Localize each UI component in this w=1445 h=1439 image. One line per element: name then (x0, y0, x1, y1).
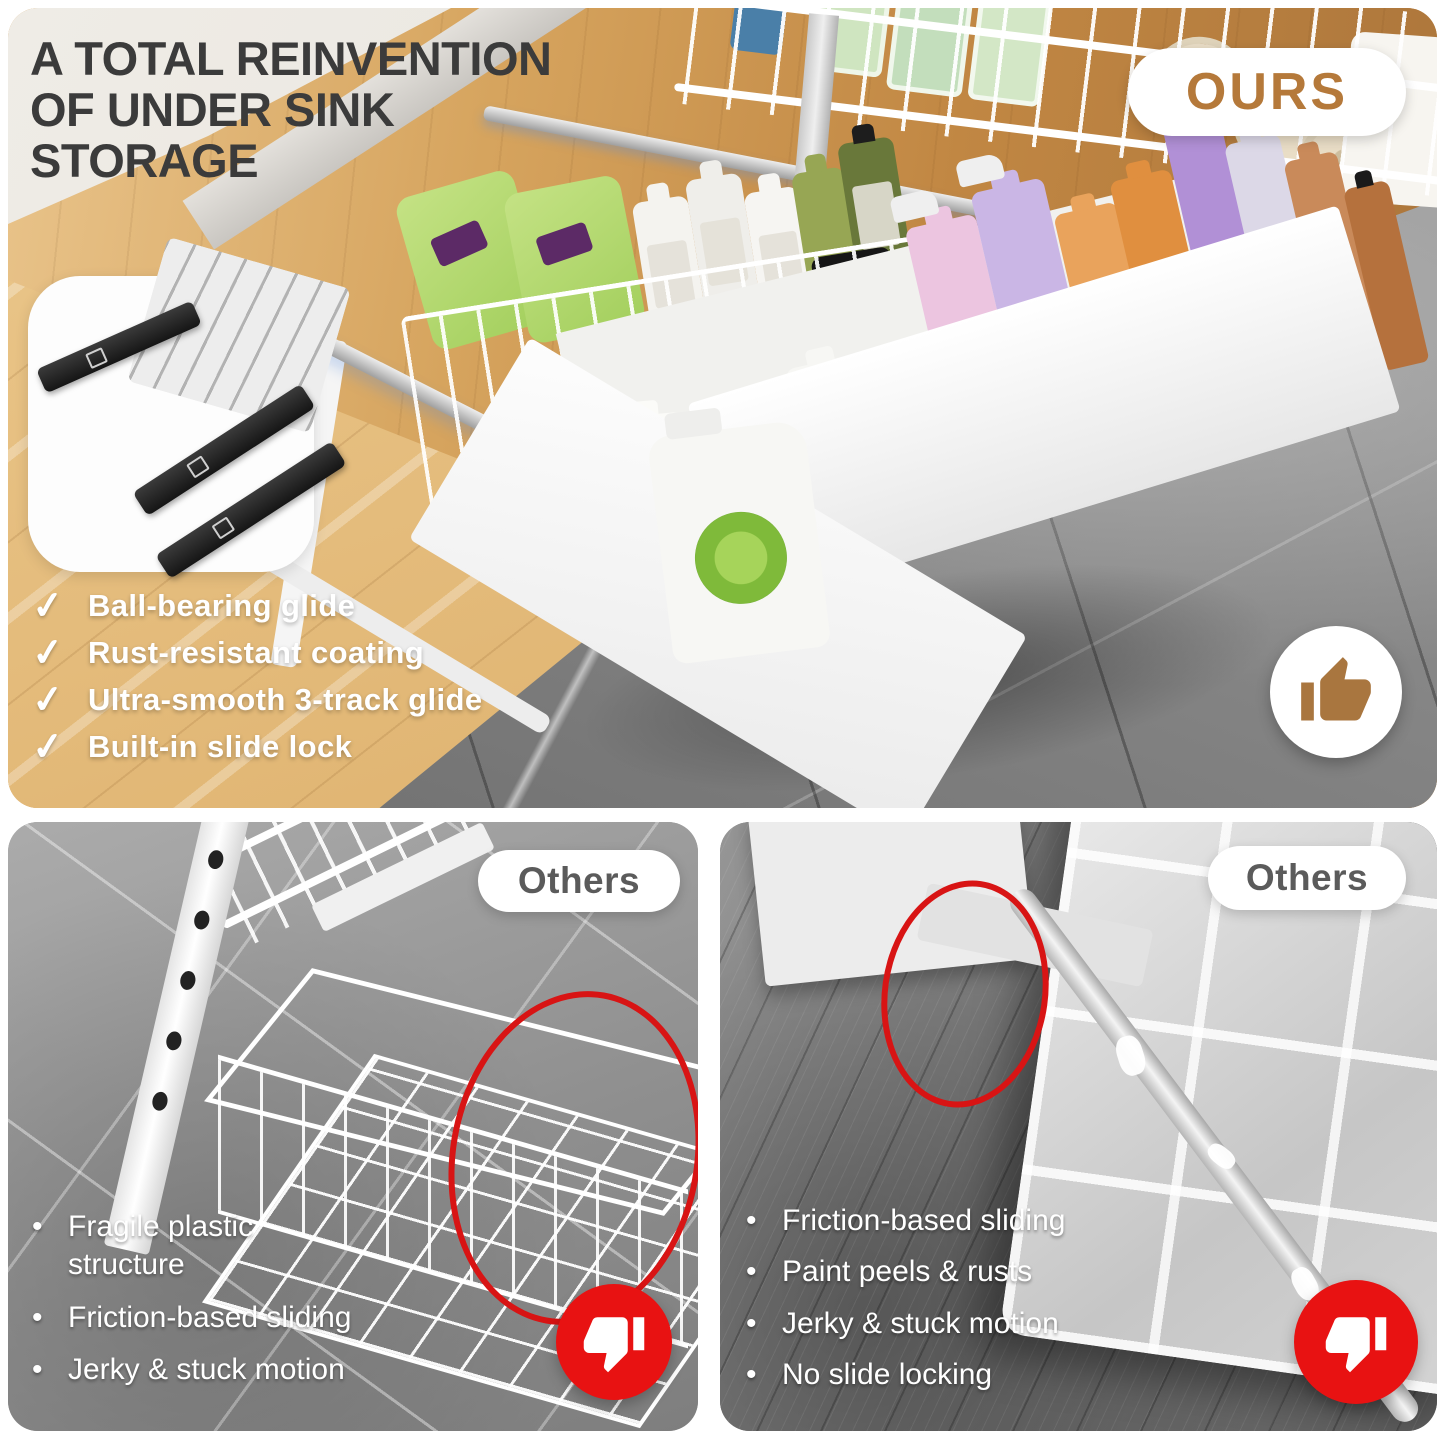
drawback-list: • Fragile plastic structure • Friction-b… (32, 1208, 392, 1404)
ours-badge: OURS (1128, 48, 1406, 136)
competitor-panel-left: Others • Fragile plastic structure • Fri… (8, 822, 698, 1431)
others-badge-label: Others (1246, 857, 1368, 899)
feature-checklist: ✓ Ball-bearing glide ✓ Rust-resistant co… (32, 582, 483, 770)
bullet-glyph: • (32, 1299, 54, 1337)
bullet-glyph: • (746, 1305, 768, 1343)
drawback-item: • Friction-based sliding (746, 1202, 1206, 1240)
drawback-item: • Friction-based sliding (32, 1299, 392, 1337)
drawback-item: • Jerky & stuck motion (746, 1305, 1206, 1343)
ours-panel: A TOTAL REINVENTION OF UNDER SINK STORAG… (8, 8, 1437, 808)
check-icon: ✓ (30, 581, 74, 630)
slide-rail-inset-photo (28, 276, 314, 572)
drawback-item: • Jerky & stuck motion (32, 1351, 392, 1389)
detergent-jug (647, 419, 832, 665)
feature-item: ✓ Ultra-smooth 3-track glide (32, 676, 483, 723)
bullet-glyph: • (746, 1356, 768, 1394)
drawback-text: Jerky & stuck motion (782, 1305, 1059, 1343)
thumbs-down-icon (1323, 1309, 1389, 1375)
drawback-text: Friction-based sliding (68, 1299, 351, 1337)
thumbs-down-icon (581, 1309, 647, 1375)
bullet-glyph: • (746, 1253, 768, 1291)
others-badge: Others (1208, 846, 1406, 910)
title-line-2: OF UNDER SINK (30, 85, 551, 136)
feature-label: Built-in slide lock (88, 729, 352, 765)
drawback-item: • Fragile plastic structure (32, 1208, 392, 1285)
ours-badge-label: OURS (1186, 62, 1348, 122)
feature-label: Rust-resistant coating (88, 635, 424, 671)
thumbs-up-badge (1270, 626, 1402, 758)
bullet-glyph: • (32, 1208, 54, 1285)
drawback-text: Jerky & stuck motion (68, 1351, 345, 1389)
thumbs-down-badge (1294, 1280, 1418, 1404)
feature-item: ✓ Ball-bearing glide (32, 582, 483, 629)
page-title: A TOTAL REINVENTION OF UNDER SINK STORAG… (30, 34, 551, 186)
feature-label: Ultra-smooth 3-track glide (88, 682, 483, 718)
competitor-panel-right: Others • Friction-based sliding • Paint … (720, 822, 1437, 1431)
feature-label: Ball-bearing glide (88, 588, 355, 624)
feature-item: ✓ Built-in slide lock (32, 723, 483, 770)
bullet-glyph: • (32, 1351, 54, 1389)
title-line-1: A TOTAL REINVENTION (30, 34, 551, 85)
check-icon: ✓ (30, 722, 74, 771)
product-comparison-infographic: A TOTAL REINVENTION OF UNDER SINK STORAG… (0, 0, 1445, 1439)
others-badge-label: Others (518, 860, 640, 902)
drawback-list: • Friction-based sliding • Paint peels &… (746, 1202, 1206, 1408)
drawback-text: No slide locking (782, 1356, 992, 1394)
check-icon: ✓ (30, 675, 74, 724)
title-line-3: STORAGE (30, 136, 551, 187)
feature-item: ✓ Rust-resistant coating (32, 629, 483, 676)
drawback-item: • No slide locking (746, 1356, 1206, 1394)
thumbs-up-icon (1298, 654, 1374, 730)
drawback-item: • Paint peels & rusts (746, 1253, 1206, 1291)
check-icon: ✓ (30, 628, 74, 677)
bullet-glyph: • (746, 1202, 768, 1240)
thumbs-down-badge (556, 1284, 672, 1400)
drawback-text: Fragile plastic structure (68, 1208, 306, 1285)
drawback-text: Paint peels & rusts (782, 1253, 1032, 1291)
others-badge: Others (478, 850, 680, 912)
drawback-text: Friction-based sliding (782, 1202, 1065, 1240)
